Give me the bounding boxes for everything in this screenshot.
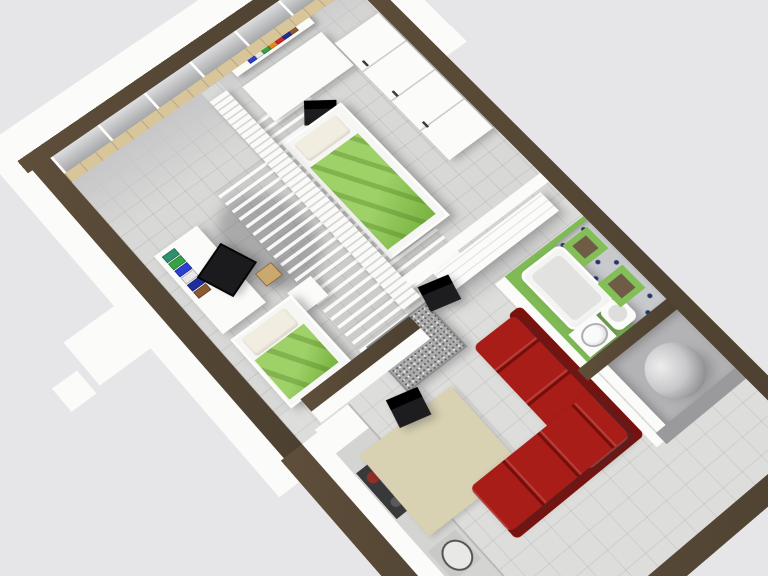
wardrobe-handle (392, 90, 399, 97)
balcony-ledge-far (52, 370, 96, 411)
bath-mat-center (572, 235, 598, 258)
bath-mat-center (608, 273, 636, 298)
apartment-plan (50, 0, 768, 576)
wardrobe-handle (362, 60, 369, 67)
wardrobe-handle (422, 121, 429, 128)
render-viewport (0, 0, 768, 576)
